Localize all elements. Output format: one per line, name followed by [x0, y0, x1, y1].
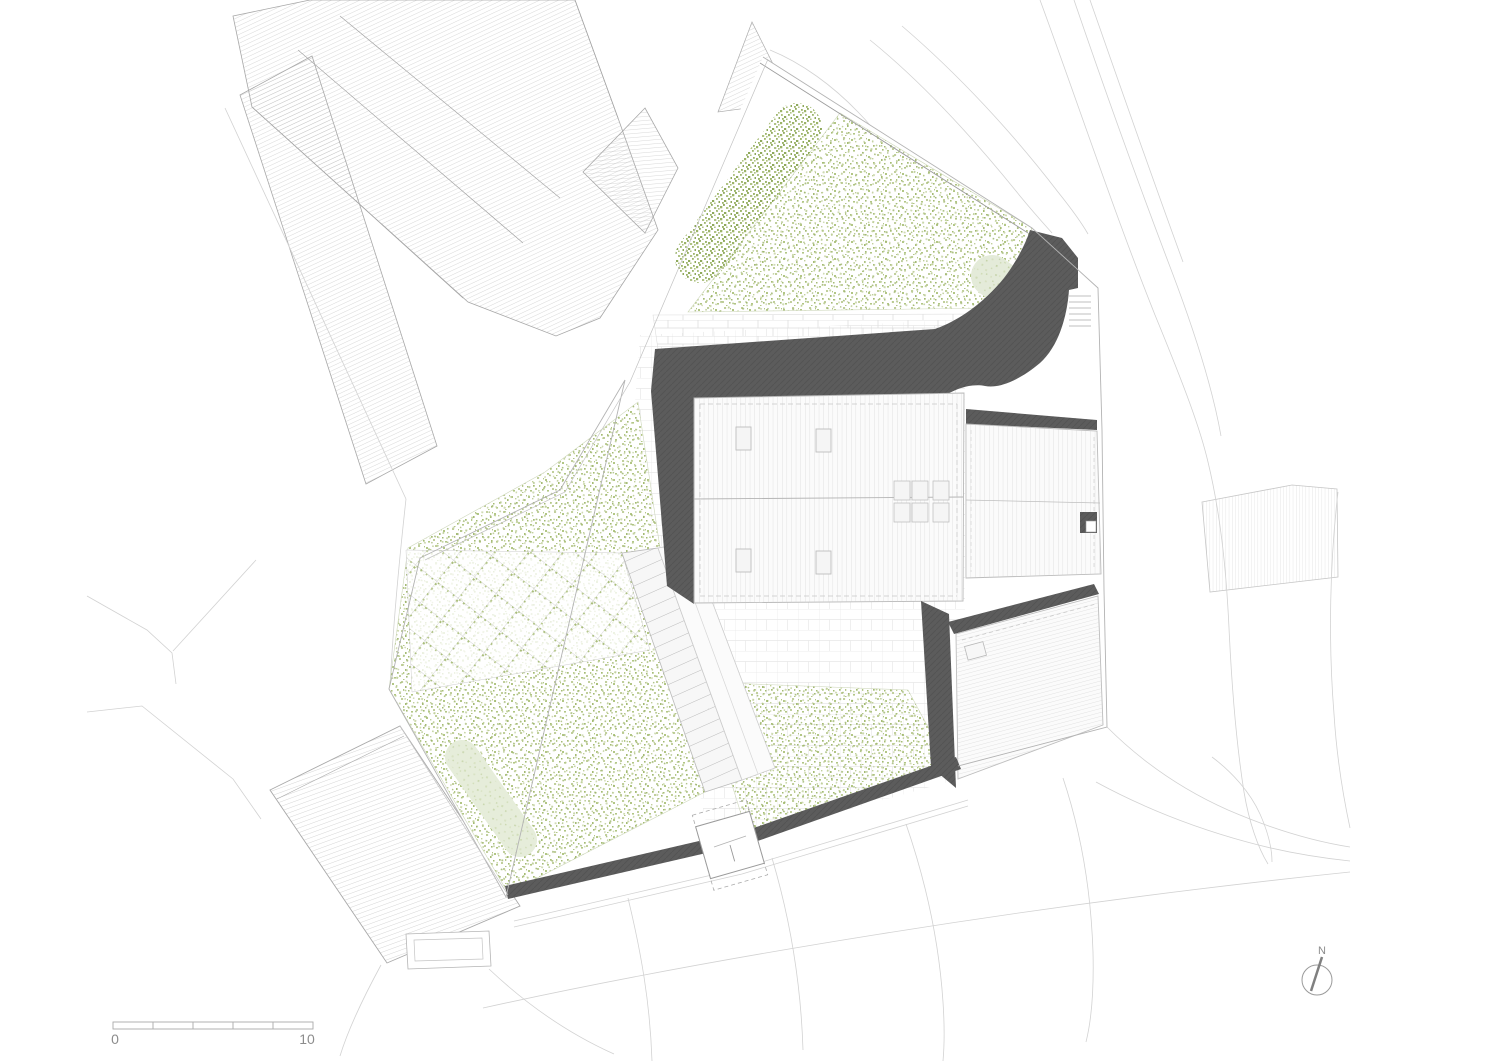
site-plan-drawing: 0 10 N	[0, 0, 1500, 1061]
small-outbuilding	[406, 931, 491, 969]
site-plan-page: 0 10 N	[0, 0, 1500, 1061]
chimney	[1080, 512, 1097, 533]
main-building	[694, 393, 964, 603]
neighbor-roof-east	[1202, 485, 1338, 592]
scale-bar-body	[113, 1022, 313, 1029]
east-building	[966, 424, 1101, 578]
scale-start-label: 0	[111, 1031, 119, 1047]
scale-end-label: 10	[299, 1031, 315, 1047]
north-label: N	[1318, 945, 1326, 957]
